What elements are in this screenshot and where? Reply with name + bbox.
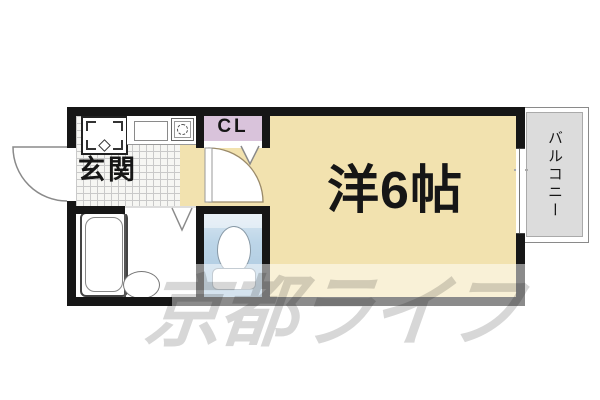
watermark-text: 京都ライフ bbox=[140, 250, 527, 362]
wall-toilet-top bbox=[196, 206, 270, 214]
balcony: バルコニー bbox=[526, 112, 583, 237]
room-door-arc bbox=[209, 148, 263, 202]
balcony-label: バルコニー bbox=[544, 130, 565, 220]
wall-closet-right bbox=[262, 116, 270, 148]
wall-bath-top bbox=[67, 206, 125, 214]
entrance-label: 玄関 bbox=[78, 157, 138, 184]
wall-left-upper bbox=[67, 107, 76, 148]
wall-left-lower bbox=[67, 201, 76, 306]
sliding-window bbox=[516, 148, 525, 234]
wall-top bbox=[67, 107, 520, 116]
wall-closet-left bbox=[196, 116, 204, 148]
wall-right-upper bbox=[516, 107, 525, 148]
entrance-door-arc bbox=[13, 147, 67, 201]
bathroom-door-mark bbox=[172, 208, 192, 230]
main-room-label: 洋6帖 bbox=[295, 165, 495, 217]
closet-label: CL bbox=[204, 117, 262, 136]
room-door-leaf bbox=[205, 148, 212, 202]
floor-plan: バルコニー 玄関 CL 洋6帖 京都ライフ bbox=[0, 0, 600, 400]
